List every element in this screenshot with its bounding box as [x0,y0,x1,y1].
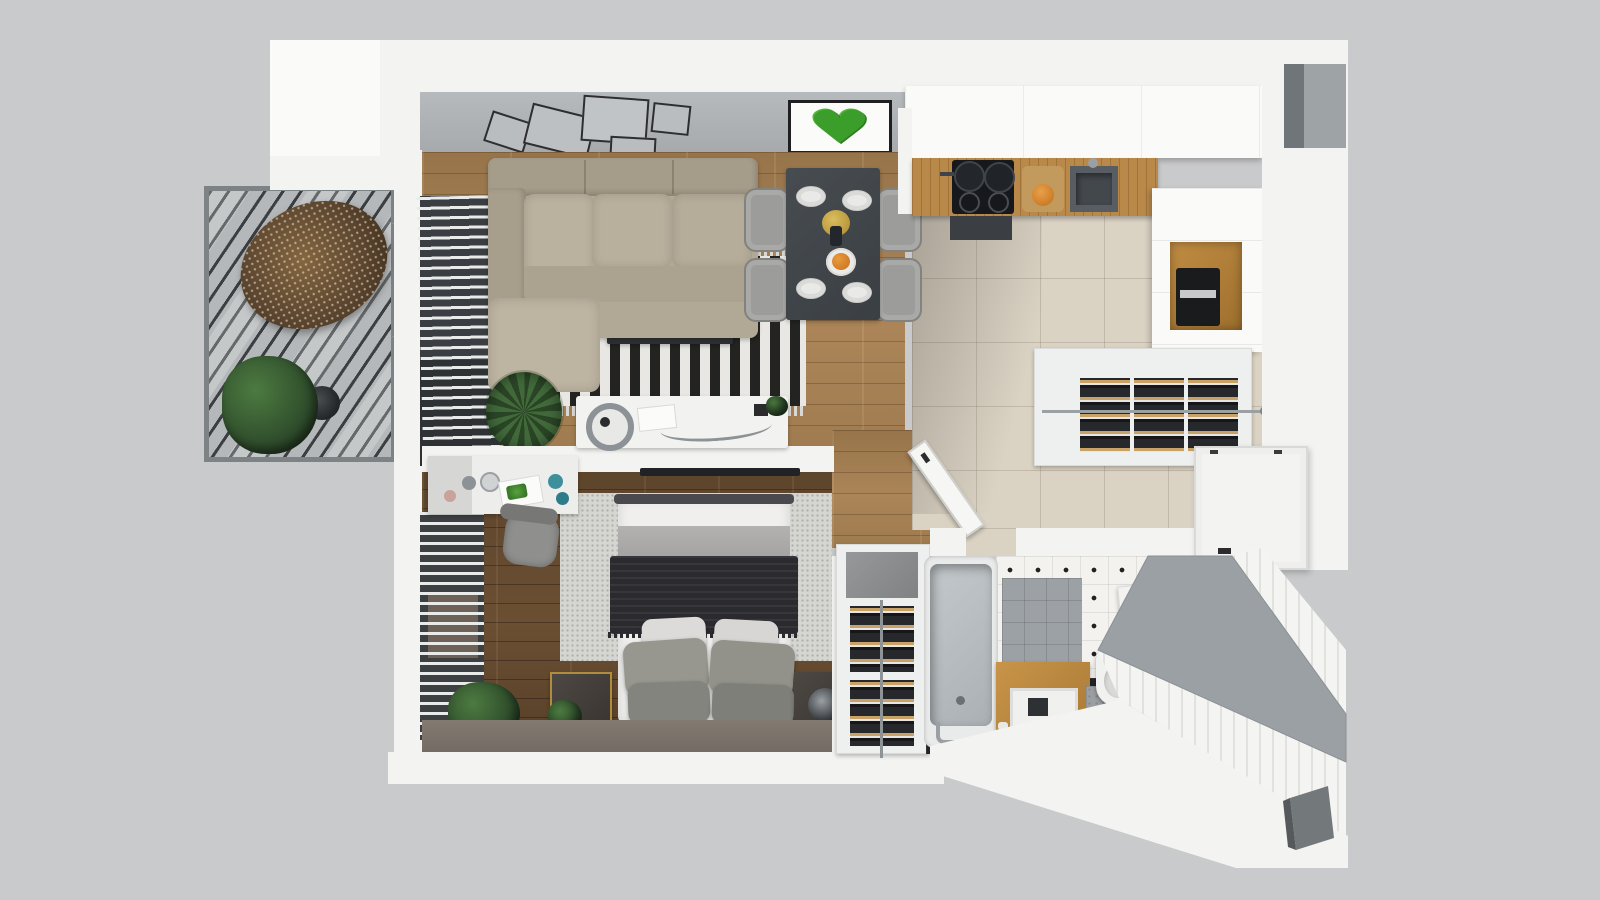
teal-box-2 [556,492,569,505]
bedroom-tv [640,468,800,476]
oven-front [950,216,1012,240]
desk-cup [462,476,476,490]
plate-2 [842,190,872,211]
blush-dish [444,490,456,502]
shoe-tower-top-box [846,552,918,598]
fruit-plate [826,248,856,276]
washing-machine [1117,578,1226,653]
dining-chair-4 [876,258,922,322]
table-lamp [586,403,634,451]
top-left-wall-step [270,40,380,156]
shower-drain-mat [1126,710,1162,734]
outer-wall-tiled-high [1232,548,1346,714]
sink-faucet [998,722,1008,730]
desk-chair [498,506,564,570]
bathtub [924,556,998,748]
table-centerpiece [830,226,842,246]
magazine-art [506,483,528,500]
bath-wall-stub [930,528,966,556]
door-handle[interactable] [920,452,930,463]
console-plant [766,396,788,416]
orange-pitcher [1032,184,1054,206]
door-hinge-2 [1274,450,1282,454]
sofa-back-seam-2 [672,160,674,194]
kitchen-sink [1070,166,1118,212]
oranges [832,253,850,270]
shoe-drawer-3 [1188,378,1238,452]
wall-notch-shadow [1284,64,1304,148]
sofa-back-seam-1 [584,160,586,194]
burner-4 [988,192,1009,213]
toilet [1096,648,1140,706]
pot-2 [984,162,1015,193]
kitchen-faucet [1088,158,1098,168]
plate-1 [796,186,826,207]
vanity [996,662,1090,742]
entrance-door[interactable] [1194,446,1308,570]
hanging-rail [1042,410,1262,413]
corner-sofa [488,158,758,392]
bed-headrail [614,494,794,504]
floor-plan-stage: ♥ [0,0,1600,900]
bed [618,498,790,724]
shoe-drawer-2 [1134,378,1184,452]
gallery-frame-4 [651,102,692,136]
coffee-machine [1176,268,1220,326]
bathtub-drain [956,696,965,705]
plate-4 [842,282,872,303]
counter-end-wall [898,108,912,214]
sink-inner [1076,173,1112,205]
washer-door [1124,591,1183,650]
shower-tile-panel [1002,578,1082,664]
pot-handle [940,172,954,176]
wall-notch [1284,64,1346,148]
lamp-bulb [600,417,610,427]
burner-3 [959,192,980,213]
door-hinge-1 [1210,450,1218,454]
tall-cabinet-column [1152,188,1262,352]
shoe-tower [836,544,928,752]
pillow-gray-3 [627,681,710,726]
toilet-bowl [1104,664,1132,698]
sofa-seat-cushion-1 [592,194,672,268]
kitchen-counter [898,108,1162,242]
sink-faucet-2 [1072,722,1082,730]
plate-3 [796,278,826,299]
sink-basin [1028,698,1048,716]
wall-niche [1290,786,1334,850]
coffee-machine-trim [1180,290,1216,298]
balcony-plant [222,356,318,454]
moss-heart-icon: ♥ [808,109,872,145]
pot-1 [954,161,985,192]
teal-box-1 [548,474,563,489]
shoe-drawer-1 [1080,378,1130,452]
living-palm-plant [486,372,562,452]
shoe-tower-pole [880,600,883,758]
dining-set [740,164,920,326]
console-table [576,396,788,448]
washer-control [1197,592,1212,604]
dining-chair-1 [744,188,790,252]
cooktop [952,160,1014,214]
tub-faucet [936,722,966,744]
entrance-door-handle[interactable] [1218,548,1231,554]
dining-chair-2 [744,258,790,322]
sofa-back-top [488,158,758,196]
sofa-front-edge [524,266,758,302]
moss-heart-art: ♥ [788,100,892,154]
wall-niche-shadow [1283,798,1296,850]
bottom-outer-wall [388,752,944,784]
